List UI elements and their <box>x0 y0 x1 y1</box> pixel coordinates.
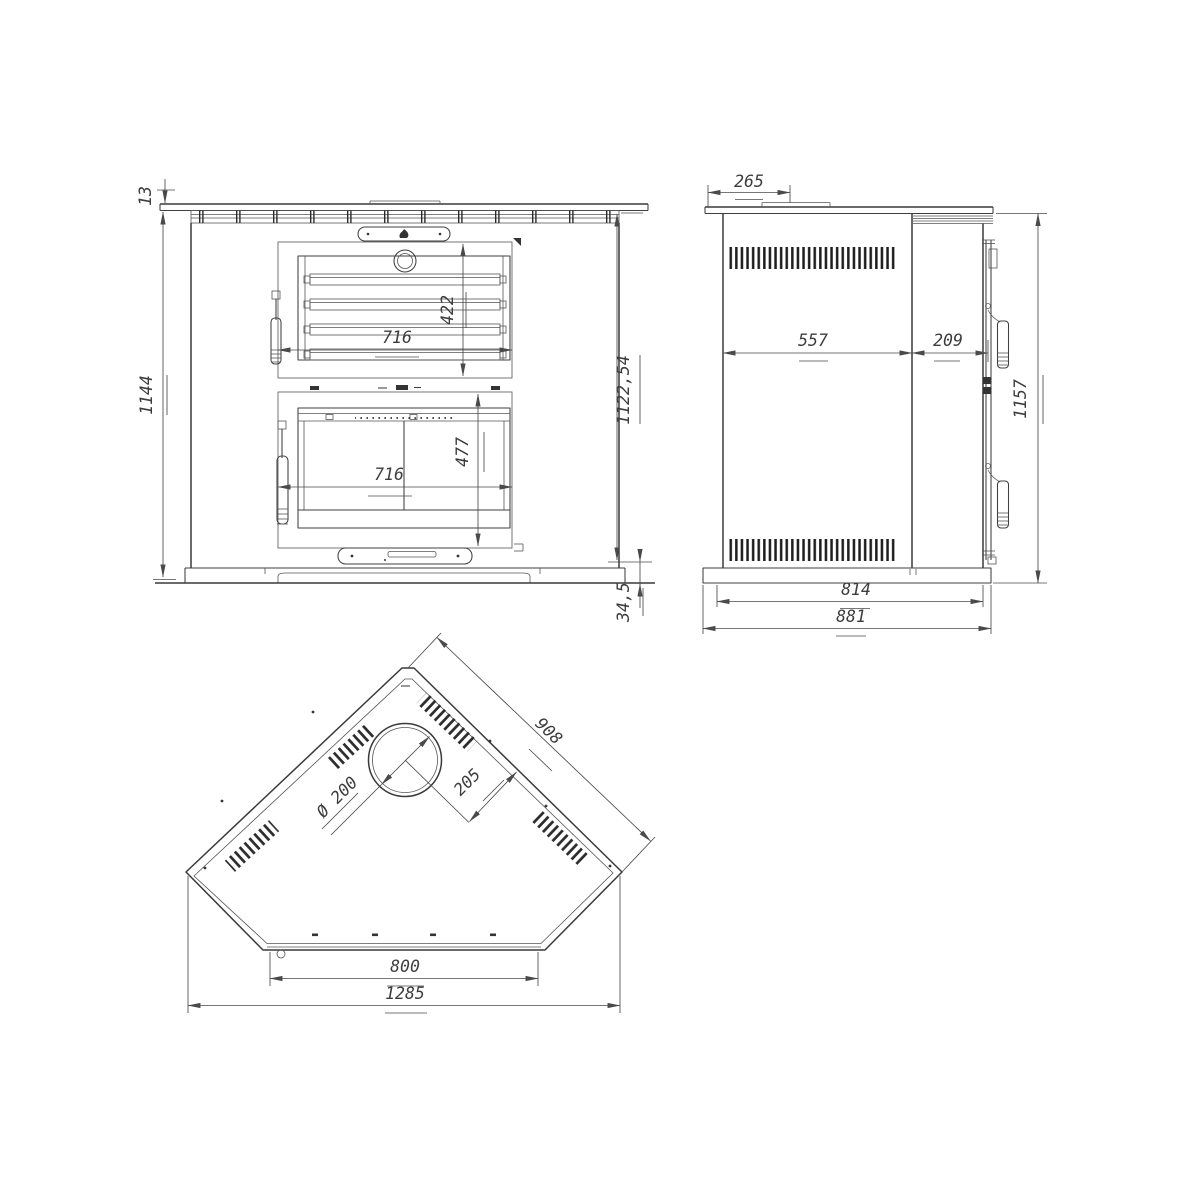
side-view: 265 557 209 1157 814 <box>703 172 1047 636</box>
technical-drawing-page: 13 1144 422 716 477 716 <box>0 0 1200 1200</box>
dim-label-265: 265 <box>734 172 764 191</box>
dim-side-top-offset: 265 <box>708 172 790 207</box>
front-body-outline <box>191 223 619 568</box>
oven-door-slats <box>304 274 506 360</box>
dim-flue-diameter: Ø 200 <box>313 737 430 836</box>
dim-label-1157: 1157 <box>1011 379 1030 419</box>
dim-label-881: 881 <box>836 607 866 626</box>
dim-label-477: 477 <box>453 437 472 467</box>
ash-pan-cover <box>338 548 472 564</box>
dim-side-base-depth: 814 <box>717 580 983 609</box>
front-top-plate <box>160 201 648 211</box>
frame-corner-mark <box>513 238 521 246</box>
ash-pan-handle <box>388 552 436 558</box>
mid-seam-marks <box>310 385 500 390</box>
grille-ticks <box>193 211 617 224</box>
front-view: 13 1144 422 716 477 716 <box>136 179 655 623</box>
air-vent-holes <box>355 416 455 420</box>
top-vent-slots-right-outer <box>531 810 589 866</box>
dim-rear-panel-length: 908 <box>408 633 655 872</box>
technical-drawing-canvas: 13 1144 422 716 477 716 <box>0 0 1200 1200</box>
dim-top-overall-width: 1285 <box>188 876 620 1013</box>
dim-front-body-height: 1122,54 <box>608 213 652 562</box>
frame-corner-bracket <box>514 544 523 551</box>
top-view: Ø 200 205 908 800 1285 <box>186 633 655 1013</box>
dim-front-panel-width: 800 <box>270 952 538 986</box>
badge-logo-icon <box>400 229 409 238</box>
side-door-profile <box>982 240 1009 564</box>
dim-label-814: 814 <box>841 580 871 599</box>
side-grille-profile <box>913 216 993 224</box>
side-vent-slots-bottom <box>729 539 895 561</box>
dim-label-209: 209 <box>933 331 963 350</box>
side-handle-lower <box>986 464 1009 529</box>
dim-side-door-section-depth: 209 <box>912 331 988 362</box>
dim-label-13: 13 <box>136 186 155 206</box>
dim-label-557: 557 <box>798 331 828 350</box>
dim-label-34-5: 34,5 <box>614 582 633 623</box>
dim-front-top-plate-thickness: 13 <box>136 179 175 206</box>
dim-label-1144: 1144 <box>137 375 156 415</box>
dim-side-body-depth: 557 <box>723 331 912 361</box>
firebox-door-handle <box>277 421 288 524</box>
dim-front-overall-height: 1144 <box>137 212 176 580</box>
dim-firebox-opening-height: 477 <box>453 394 484 546</box>
mount-hole <box>277 950 285 958</box>
dim-label-422: 422 <box>438 295 457 325</box>
side-top-plate <box>705 203 993 214</box>
side-handle-upper <box>986 304 1009 369</box>
front-warming-grille <box>191 211 619 224</box>
dim-label-716-upper: 716 <box>382 328 412 347</box>
oven-door-handle <box>271 291 281 364</box>
side-vent-slots-top <box>729 247 895 269</box>
dim-label-716-lower: 716 <box>374 465 404 484</box>
front-plinth <box>155 568 655 583</box>
dim-firebox-opening-width: 716 <box>278 465 512 496</box>
dim-label-908: 908 <box>531 714 566 748</box>
oven-door-knob-icon <box>394 250 416 272</box>
dim-flue-edge-distance: 205 <box>405 760 517 823</box>
dim-label-1285: 1285 <box>385 984 425 1003</box>
brand-badge <box>358 227 450 241</box>
dim-label-1122-54: 1122,54 <box>614 355 633 425</box>
top-outline-outer <box>186 668 622 950</box>
dim-label-205: 205 <box>450 765 485 800</box>
dim-label-800: 800 <box>390 957 420 976</box>
